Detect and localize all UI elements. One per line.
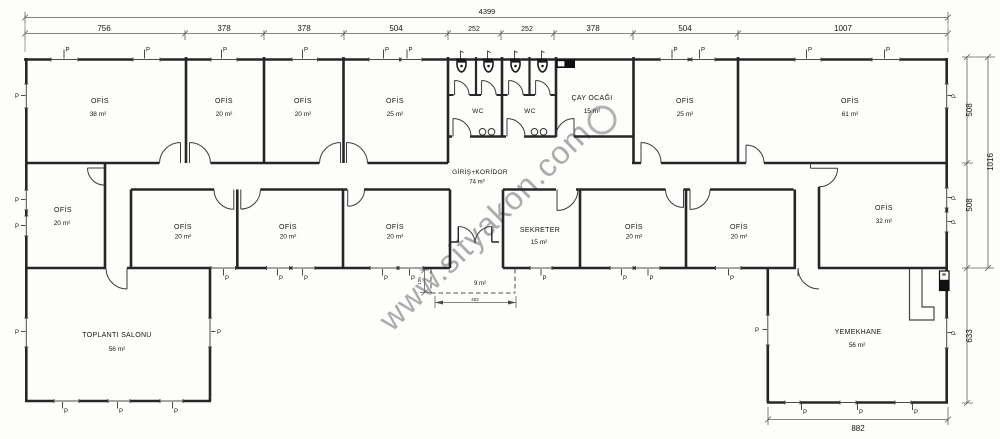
- svg-text:P: P: [279, 276, 283, 282]
- svg-text:P: P: [543, 276, 547, 282]
- svg-text:402: 402: [471, 297, 479, 302]
- svg-text:20 m²: 20 m²: [731, 234, 748, 241]
- svg-text:378: 378: [297, 24, 311, 33]
- svg-text:P: P: [15, 198, 19, 204]
- svg-text:WC: WC: [472, 108, 484, 115]
- svg-text:P: P: [304, 48, 308, 54]
- svg-text:P: P: [409, 48, 413, 54]
- svg-text:20 m²: 20 m²: [295, 111, 312, 118]
- svg-text:P: P: [225, 276, 229, 282]
- svg-text:P: P: [223, 48, 227, 54]
- svg-text:20 m²: 20 m²: [626, 234, 643, 241]
- svg-text:20 m²: 20 m²: [216, 111, 233, 118]
- svg-text:61 m²: 61 m²: [842, 111, 859, 118]
- svg-text:P: P: [808, 48, 812, 54]
- svg-text:P: P: [304, 276, 308, 282]
- svg-text:20 m²: 20 m²: [175, 234, 192, 241]
- svg-text:P: P: [952, 196, 958, 200]
- svg-text:P: P: [384, 276, 388, 282]
- svg-text:378: 378: [217, 24, 231, 33]
- svg-text:P: P: [146, 48, 150, 54]
- svg-text:882: 882: [851, 424, 865, 433]
- svg-text:P: P: [952, 220, 958, 224]
- svg-text:GİRİŞ+KORİDOR: GİRİŞ+KORİDOR: [452, 167, 508, 176]
- svg-text:32 m²: 32 m²: [876, 218, 893, 225]
- svg-text:P: P: [701, 48, 705, 54]
- svg-text:P: P: [674, 48, 678, 54]
- svg-text:56 m²: 56 m²: [109, 346, 126, 353]
- svg-text:P: P: [803, 410, 807, 416]
- svg-text:P: P: [217, 330, 221, 336]
- svg-text:P: P: [64, 409, 68, 415]
- svg-text:25 m²: 25 m²: [677, 111, 694, 118]
- svg-text:504: 504: [678, 24, 692, 33]
- svg-text:TOPLANTI SALONU: TOPLANTI SALONU: [82, 332, 151, 339]
- svg-text:25 m²: 25 m²: [387, 111, 404, 118]
- svg-text:WC: WC: [524, 108, 536, 115]
- svg-text:20 m²: 20 m²: [280, 234, 297, 241]
- svg-text:1007: 1007: [834, 24, 852, 33]
- svg-text:252: 252: [468, 26, 480, 33]
- svg-text:756: 756: [97, 24, 111, 33]
- svg-text:252: 252: [521, 26, 533, 33]
- svg-text:P: P: [623, 276, 627, 282]
- svg-text:P: P: [952, 94, 958, 98]
- svg-text:56 m²: 56 m²: [849, 342, 866, 349]
- svg-text:P: P: [886, 48, 890, 54]
- svg-text:74 m²: 74 m²: [469, 180, 484, 186]
- svg-text:OFİS: OFİS: [676, 96, 694, 105]
- svg-text:P: P: [411, 276, 415, 282]
- svg-text:508: 508: [965, 103, 974, 117]
- svg-text:OFİS: OFİS: [54, 205, 72, 214]
- svg-text:508: 508: [965, 198, 974, 212]
- svg-text:OFİS: OFİS: [174, 222, 192, 231]
- svg-text:P: P: [66, 48, 70, 54]
- svg-text:P: P: [15, 330, 19, 336]
- svg-text:P: P: [15, 224, 19, 230]
- svg-text:1016: 1016: [986, 153, 995, 171]
- svg-text:P: P: [914, 410, 918, 416]
- svg-text:378: 378: [586, 24, 600, 33]
- svg-text:P: P: [952, 331, 958, 335]
- svg-text:OFİS: OFİS: [841, 96, 859, 105]
- svg-text:9 m²: 9 m²: [474, 281, 486, 287]
- svg-text:15 m²: 15 m²: [584, 108, 601, 115]
- svg-text:ÇAY OCAĞI: ÇAY OCAĞI: [572, 93, 613, 102]
- svg-text:OFİS: OFİS: [386, 222, 404, 231]
- svg-text:OFİS: OFİS: [294, 96, 312, 105]
- svg-text:P: P: [119, 409, 123, 415]
- svg-text:20 m²: 20 m²: [387, 234, 404, 241]
- svg-text:OFİS: OFİS: [215, 96, 233, 105]
- svg-text:20 m²: 20 m²: [54, 220, 71, 227]
- svg-text:P: P: [385, 48, 389, 54]
- svg-text:504: 504: [389, 24, 403, 33]
- svg-text:OFİS: OFİS: [875, 203, 893, 212]
- svg-text:120: 120: [417, 277, 422, 285]
- svg-text:OFİS: OFİS: [91, 96, 109, 105]
- svg-text:P: P: [755, 328, 759, 334]
- svg-text:P: P: [650, 276, 654, 282]
- svg-text:15 m²: 15 m²: [531, 239, 548, 246]
- svg-text:SEKRETER: SEKRETER: [520, 227, 560, 234]
- svg-text:OFİS: OFİS: [386, 96, 404, 105]
- svg-text:P: P: [730, 276, 734, 282]
- svg-text:38 m²: 38 m²: [90, 111, 107, 118]
- svg-text:OFİS: OFİS: [625, 222, 643, 231]
- svg-text:P: P: [859, 410, 863, 416]
- svg-text:633: 633: [965, 329, 974, 343]
- svg-text:P: P: [174, 409, 178, 415]
- svg-text:OFİS: OFİS: [730, 222, 748, 231]
- svg-text:P: P: [15, 94, 19, 100]
- svg-text:4399: 4399: [479, 7, 496, 16]
- svg-text:YEMEKHANE: YEMEKHANE: [835, 329, 882, 336]
- svg-text:OFİS: OFİS: [279, 222, 297, 231]
